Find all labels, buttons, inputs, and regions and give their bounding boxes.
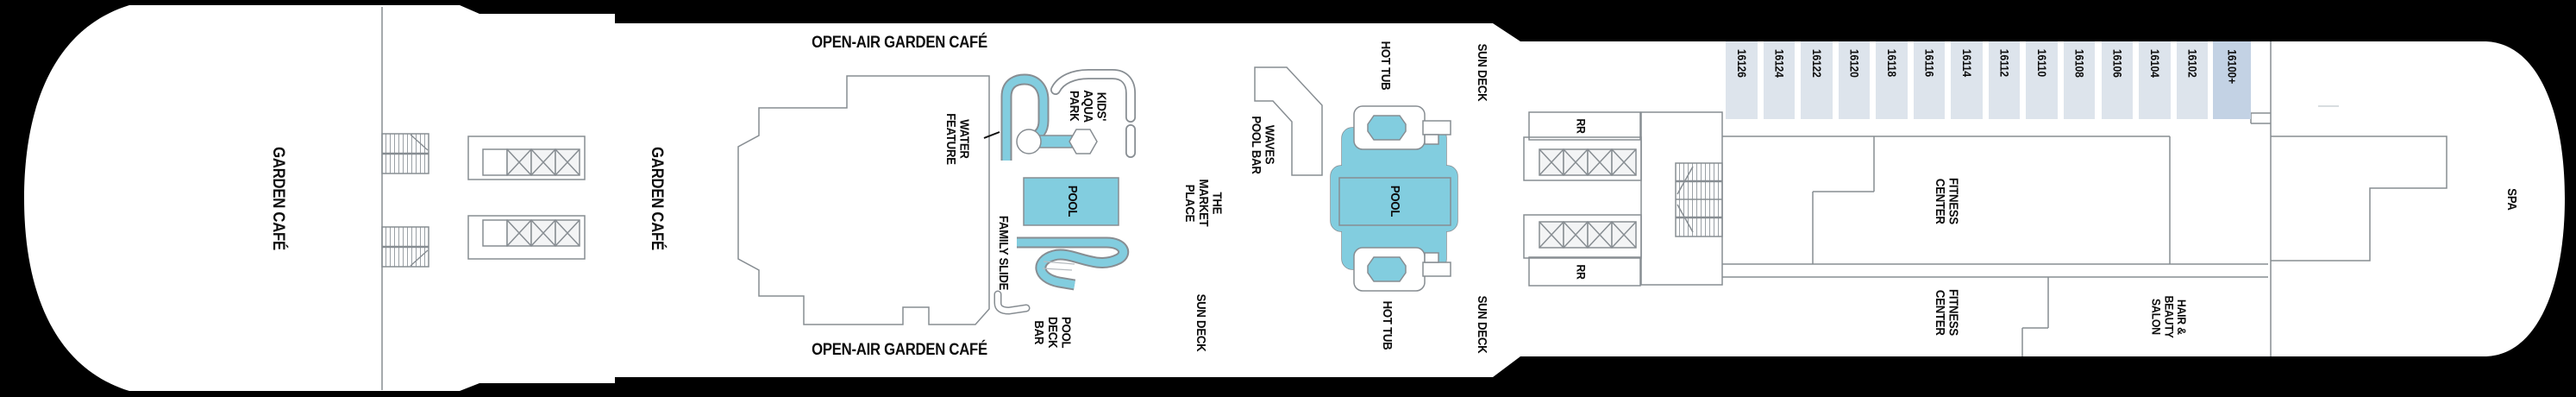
stairs-forward-bottom xyxy=(382,227,429,267)
cabin-16118: 16118 xyxy=(1876,41,1908,119)
cabin-16104: 16104 xyxy=(2139,41,2171,119)
cabin-16108: 16108 xyxy=(2064,41,2096,119)
cabin-16122: 16122 xyxy=(1801,41,1833,119)
stairs-midship xyxy=(1676,163,1722,236)
cabin-16112: 16112 xyxy=(1989,41,2021,119)
cabin-number: 16102 xyxy=(2185,49,2198,78)
kids-aqua-park-label: KIDS' AQUA PARK xyxy=(1068,90,1108,123)
cabin-16126: 16126 xyxy=(1726,41,1758,119)
cabin-number: 16120 xyxy=(1847,49,1860,78)
restroom-label-top: RR xyxy=(1575,118,1588,133)
stairs-forward-top xyxy=(382,134,429,173)
garden-cafe-label-port: GARDEN CAFÉ xyxy=(269,147,286,250)
cabin-number: 16104 xyxy=(2148,49,2161,78)
main-pool-label: POOL xyxy=(1388,186,1401,217)
family-pool-label: POOL xyxy=(1065,186,1079,217)
cabin-16106: 16106 xyxy=(2102,41,2134,119)
cabin-number: 16114 xyxy=(1960,49,1973,77)
sun-deck-label-stbd-fwd: SUN DECK xyxy=(1475,44,1489,102)
aqua-park-connector xyxy=(1039,135,1072,148)
cabin-16110: 16110 xyxy=(2026,41,2058,119)
cabin-16116: 16116 xyxy=(1914,41,1946,119)
cabin-number: 16126 xyxy=(1735,49,1748,78)
sun-deck-label-stbd-aft: SUN DECK xyxy=(1475,296,1489,354)
the-market-place-label: THE MARKET PLACE xyxy=(1183,180,1224,227)
cabin-16100: 16100+ xyxy=(2213,41,2251,119)
deck-plan: 1612616124161221612016118161161611416112… xyxy=(0,0,2576,397)
hot-tub-label-fwd: HOT TUB xyxy=(1378,41,1392,91)
open-air-garden-cafe-top-label: OPEN-AIR GARDEN CAFÉ xyxy=(812,35,987,52)
waves-pool-bar-label: WAVES POOL BAR xyxy=(1249,116,1275,173)
cabin-number: 16112 xyxy=(1998,49,2011,77)
cabin-number: 16106 xyxy=(2110,49,2123,78)
cabin-number: 16110 xyxy=(2035,49,2048,77)
hair-beauty-salon-label: HAIR & BEAUTY SALON xyxy=(2150,295,2188,337)
family-slide-label: FAMILY SLIDE xyxy=(996,216,1010,290)
pool-deck-bar-label: POOL DECK BAR xyxy=(1032,304,1073,361)
water-feature-label: WATER FEATURE xyxy=(943,113,970,165)
hot-tub-label-aft: HOT TUB xyxy=(1380,301,1394,350)
garden-cafe-label-stbd: GARDEN CAFÉ xyxy=(648,147,665,250)
cabin-16120: 16120 xyxy=(1839,41,1871,119)
aqua-park-hexagon xyxy=(1069,129,1097,154)
cabin-16102: 16102 xyxy=(2177,41,2209,119)
fitness-center-label-aft: FITNESS CENTER xyxy=(1933,289,1959,336)
cabin-16124: 16124 xyxy=(1764,41,1796,119)
cabin-number: 16124 xyxy=(1772,49,1785,78)
open-air-garden-cafe-bottom-label: OPEN-AIR GARDEN CAFÉ xyxy=(812,342,987,359)
cabin-number: 16100+ xyxy=(2226,49,2239,84)
fitness-center-label-fwd: FITNESS CENTER xyxy=(1933,178,1959,224)
cabin-number: 16118 xyxy=(1885,49,1898,77)
aqua-park-circle xyxy=(1017,129,1041,154)
cabin-number: 16122 xyxy=(1810,49,1823,78)
cabin-number: 16108 xyxy=(2073,49,2086,78)
sun-deck-label-port: SUN DECK xyxy=(1194,294,1207,352)
restroom-label-bottom: RR xyxy=(1575,264,1588,279)
cabin-16114: 16114 xyxy=(1951,41,1983,119)
cabin-number: 16116 xyxy=(1923,49,1936,77)
spa-label: SPA xyxy=(2504,188,2518,210)
